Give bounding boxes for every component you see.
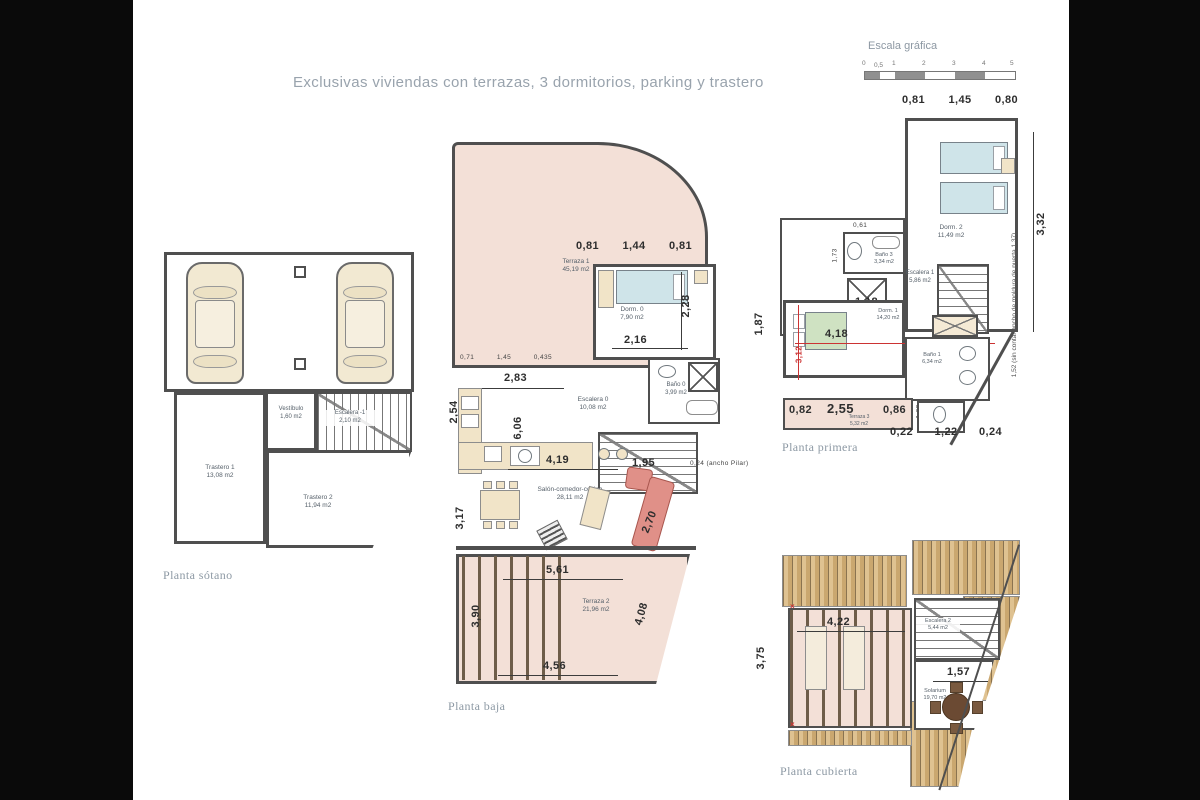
floorplan-page: Exclusivas viviendas con terrazas, 3 dor… bbox=[0, 0, 1200, 800]
bed-icon bbox=[616, 270, 688, 304]
room-name: Escalera 0 bbox=[564, 396, 622, 404]
wall bbox=[456, 546, 696, 550]
room-label-dorm0: Dorm. 0 7,90 m2 bbox=[606, 306, 658, 323]
room-label-escalera-1: Escalera -1 2,10 m2 bbox=[322, 410, 378, 426]
car-windshield bbox=[193, 286, 237, 299]
scale-segment bbox=[895, 72, 925, 79]
room-name: Escalera -1 bbox=[322, 410, 378, 418]
room-name: Baño 0 bbox=[650, 382, 702, 390]
dim: 3,12 bbox=[795, 335, 804, 375]
scale-segment bbox=[880, 72, 895, 79]
dim: 4,18 bbox=[825, 328, 848, 340]
pillow bbox=[993, 186, 1005, 210]
car-windshield bbox=[343, 286, 387, 299]
dim: 0,82 bbox=[789, 404, 812, 416]
scale-tick: 5 bbox=[1010, 60, 1014, 67]
dim: 1,45 bbox=[948, 94, 971, 106]
plan-baja: Terraza 1 45,19 m2 0,81 1,44 0,81 Dorm. … bbox=[448, 138, 738, 718]
dim: 3,17 bbox=[454, 498, 466, 538]
dim: 4,56 bbox=[543, 660, 566, 672]
wood-deck bbox=[782, 555, 907, 607]
dim: 4,19 bbox=[546, 454, 569, 466]
dim-annotation: 0,24 (ancho Pilar) bbox=[690, 460, 770, 467]
stool bbox=[616, 448, 628, 460]
room-label-trastero1: Trastero 1 13,08 m2 bbox=[188, 464, 252, 481]
dim: 1,22 bbox=[934, 426, 957, 438]
dim-row: 0,22 1,22 0,24 bbox=[890, 426, 1002, 438]
dim: 0,81 bbox=[902, 94, 925, 106]
scale-segment bbox=[925, 72, 955, 79]
scale-tick: 3 bbox=[952, 60, 956, 67]
wardrobe bbox=[598, 270, 614, 308]
scale-tick: 0,5 bbox=[874, 62, 883, 69]
dim-line bbox=[797, 631, 905, 632]
room-label-vestibulo: Vestíbulo 1,60 m2 bbox=[267, 406, 315, 422]
dim: 1,87 bbox=[753, 304, 765, 344]
room-label-trastero2: Trastero 2 11,94 m2 bbox=[286, 494, 350, 511]
kitchen-sink bbox=[484, 446, 502, 462]
dim: 0,435 bbox=[534, 354, 552, 361]
plan-primera: Dorm. 2 11,49 m2 3,32 0,61 Baño 3 3,34 m… bbox=[775, 112, 1067, 497]
chair bbox=[483, 521, 492, 529]
dim-line bbox=[1033, 132, 1034, 332]
dim: 1,44 bbox=[622, 240, 645, 252]
stool bbox=[598, 448, 610, 460]
room-name: Baño 1 bbox=[911, 352, 953, 359]
dim: 0,86 bbox=[883, 404, 906, 416]
scale-segment bbox=[955, 72, 985, 79]
red-mark: × bbox=[790, 720, 795, 729]
dim: 0,71 bbox=[460, 354, 474, 361]
room-label-dorm1: Dorm. 1 14,20 m2 bbox=[867, 308, 909, 322]
scale-bar bbox=[864, 71, 1016, 80]
chair bbox=[509, 481, 518, 489]
car-rear-window bbox=[343, 355, 387, 368]
scale-tick: 0 bbox=[862, 60, 866, 67]
room-area: 2,10 m2 bbox=[322, 418, 378, 426]
bathtub-icon bbox=[686, 400, 718, 415]
caption-cubierta: Planta cubierta bbox=[780, 764, 858, 779]
room-area: 3,99 m2 bbox=[650, 390, 702, 398]
car-icon bbox=[336, 262, 394, 384]
room-label-terraza3: Terraza 3 5,32 m2 bbox=[837, 414, 881, 427]
caption-primera: Planta primera bbox=[782, 440, 858, 455]
caption-sotano: Planta sótano bbox=[163, 568, 233, 583]
dim: 0,81 bbox=[576, 240, 599, 252]
pillar bbox=[294, 266, 306, 278]
dim: 0,80 bbox=[995, 94, 1018, 106]
caption-baja: Planta baja bbox=[448, 699, 505, 714]
room-area: 11,94 m2 bbox=[286, 502, 350, 510]
chair bbox=[483, 481, 492, 489]
sink-icon bbox=[658, 365, 676, 378]
dim-line bbox=[612, 348, 688, 349]
room-area: 5,32 m2 bbox=[837, 421, 881, 428]
bathtub-icon bbox=[872, 236, 900, 249]
room-area: 7,90 m2 bbox=[606, 314, 658, 322]
room-area: 14,20 m2 bbox=[867, 315, 909, 322]
stove-burner bbox=[518, 449, 532, 463]
room-area: 1,60 m2 bbox=[267, 414, 315, 422]
wood-deck bbox=[788, 730, 912, 746]
chair bbox=[496, 521, 505, 529]
room-name: Dorm. 0 bbox=[606, 306, 658, 314]
dim: 2,28 bbox=[680, 286, 692, 326]
page-title: Exclusivas viviendas con terrazas, 3 dor… bbox=[293, 74, 764, 91]
room-label-terraza2: Terraza 2 21,96 m2 bbox=[566, 598, 626, 615]
sink-icon bbox=[847, 242, 862, 260]
dim: 2,16 bbox=[624, 334, 647, 346]
dim-row: 0,81 1,45 0,80 bbox=[902, 94, 1018, 106]
room-name: Escalera 1 bbox=[897, 270, 943, 278]
room-area: 3,34 m2 bbox=[863, 259, 905, 266]
room-name: Terraza 2 bbox=[566, 598, 626, 606]
bed-icon bbox=[940, 142, 1008, 174]
pillar bbox=[294, 358, 306, 370]
dim-row: 0,81 1,44 0,81 bbox=[576, 240, 692, 252]
dim-row: 0,71 1,45 0,435 bbox=[460, 354, 552, 361]
room-name: Trastero 1 bbox=[188, 464, 252, 472]
room-name: Dorm. 2 bbox=[923, 224, 979, 232]
bed-icon bbox=[940, 182, 1008, 214]
room-name: Dorm. 1 bbox=[867, 308, 909, 315]
dim: 1,57 bbox=[947, 666, 970, 678]
toilet-icon bbox=[959, 346, 976, 361]
dim: 0,81 bbox=[669, 240, 692, 252]
room-label-bano0: Baño 0 3,99 m2 bbox=[650, 382, 702, 398]
sunbed-icon bbox=[805, 626, 827, 690]
door-note: 1,52 (sin contar ancho de moldura de pue… bbox=[1011, 230, 1019, 380]
room-label-escalera2: Escalera 2 5,44 m2 bbox=[916, 618, 960, 632]
dim: 0,22 bbox=[890, 426, 913, 438]
nightstand bbox=[694, 270, 708, 284]
room-name: Baño 3 bbox=[863, 252, 905, 259]
toilet-icon bbox=[933, 406, 946, 423]
nightstand bbox=[1001, 158, 1015, 174]
room-name: Trastero 2 bbox=[286, 494, 350, 502]
room-label-escalera1: Escalera 1 5,86 m2 bbox=[897, 270, 943, 286]
room-area: 13,08 m2 bbox=[188, 472, 252, 480]
dim-line bbox=[503, 579, 623, 580]
room-area: 21,96 m2 bbox=[566, 606, 626, 614]
plan-cubierta: 4,22 3,75 × × Escalera 2 5,44 m2 1,57 So… bbox=[775, 538, 1067, 793]
room-name: Escalera 2 bbox=[916, 618, 960, 625]
scale-tick: 1 bbox=[892, 60, 896, 67]
dim: 4,22 bbox=[827, 616, 850, 628]
car-roof bbox=[345, 300, 385, 348]
room-label-dorm2: Dorm. 2 11,49 m2 bbox=[923, 224, 979, 241]
dim: 0,24 bbox=[979, 426, 1002, 438]
room-name: Vestíbulo bbox=[267, 406, 315, 414]
dim: 3,75 bbox=[755, 638, 767, 678]
chair bbox=[509, 521, 518, 529]
room-label-escalera0: Escalera 0 10,08 m2 bbox=[564, 396, 622, 413]
bidet-icon bbox=[959, 370, 976, 385]
scale-tick: 4 bbox=[982, 60, 986, 67]
scale-tick: 2 bbox=[922, 60, 926, 67]
room-area: 5,44 m2 bbox=[916, 625, 960, 632]
dim: 1,45 bbox=[497, 354, 511, 361]
patio-chair bbox=[950, 682, 963, 693]
room-label-bano1: Baño 1 6,34 m2 bbox=[911, 352, 953, 366]
sunbed-icon bbox=[843, 626, 865, 690]
plan-sotano: Trastero 1 13,08 m2 Vestíbulo 1,60 m2 Es… bbox=[160, 248, 422, 593]
room-area: 10,08 m2 bbox=[564, 404, 622, 412]
car-rear-window bbox=[193, 355, 237, 368]
dim: 2,83 bbox=[504, 372, 527, 384]
red-mark: × bbox=[790, 602, 795, 611]
dim: 3,32 bbox=[1035, 204, 1047, 244]
dim: 0,61 bbox=[853, 222, 867, 229]
car-roof bbox=[195, 300, 235, 348]
room-area: 6,34 m2 bbox=[911, 359, 953, 366]
car-icon bbox=[186, 262, 244, 384]
appliance bbox=[461, 396, 479, 410]
dim-line bbox=[498, 675, 618, 676]
wardrobe-hatch bbox=[932, 315, 978, 337]
room-area: 5,86 m2 bbox=[897, 278, 943, 286]
scale-label: Escala gráfica bbox=[868, 40, 937, 52]
dim-line bbox=[478, 388, 564, 389]
scale-segment bbox=[985, 72, 1015, 79]
appliance bbox=[461, 414, 479, 428]
room-label-bano3: Baño 3 3,34 m2 bbox=[863, 252, 905, 266]
room-area: 11,49 m2 bbox=[923, 232, 979, 240]
chair bbox=[496, 481, 505, 489]
dim: 1,73 bbox=[832, 236, 839, 276]
dim: 3,90 bbox=[470, 596, 482, 636]
pillow bbox=[793, 314, 805, 329]
patio-chair bbox=[930, 701, 941, 714]
patio-chair bbox=[972, 701, 983, 714]
dim-line bbox=[508, 469, 618, 470]
dim: 5,61 bbox=[546, 564, 569, 576]
scale-segment bbox=[865, 72, 880, 79]
dining-table-icon bbox=[480, 490, 520, 520]
